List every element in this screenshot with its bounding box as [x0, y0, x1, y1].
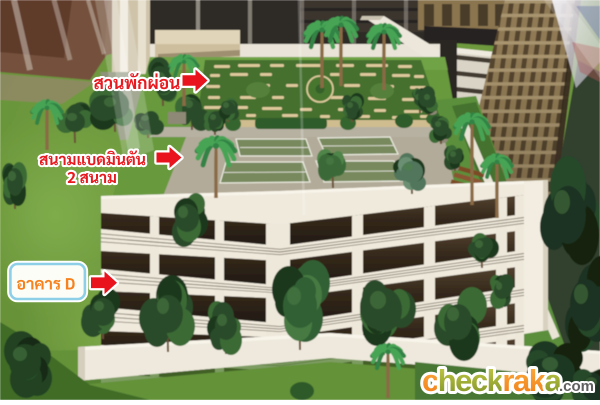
svg-text:checkraka: checkraka [422, 363, 562, 398]
svg-text:.com: .com [559, 378, 594, 395]
